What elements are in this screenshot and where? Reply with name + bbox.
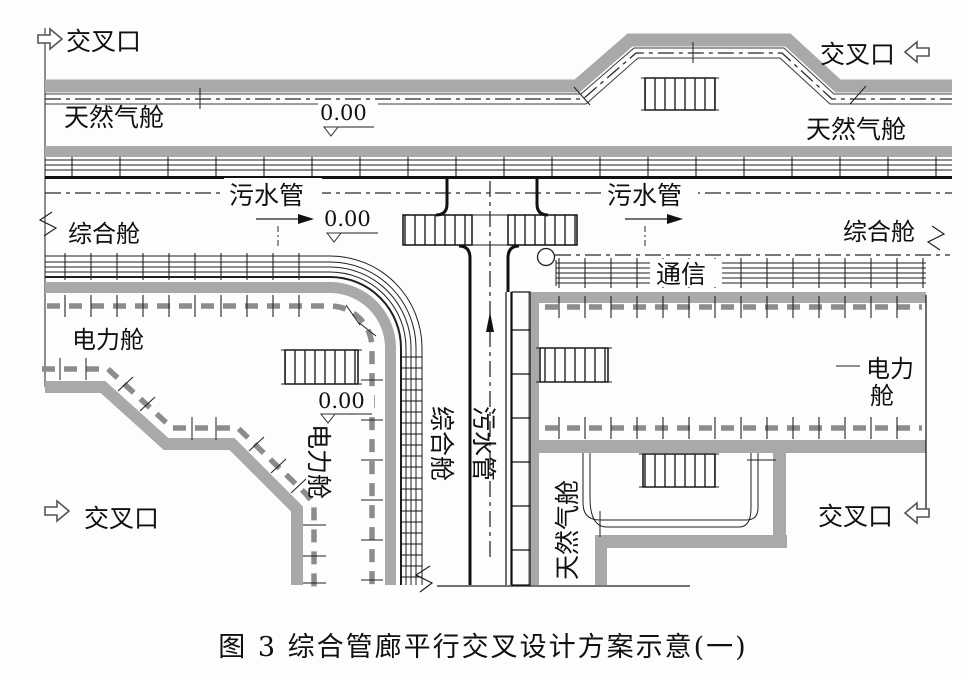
gas-corridor-top-wall [539, 440, 926, 453]
figure-caption: 图 3 综合管廊平行交叉设计方案示意(一) [218, 632, 747, 663]
rack-gray-wall [45, 146, 952, 157]
central-vertical-corridors [506, 292, 530, 585]
intersection-label-bottom-left: 交叉口 [84, 504, 159, 533]
power-label-vertical: 电力舱 [304, 424, 333, 499]
elevation-value: 0.00 [320, 101, 367, 125]
sewage-label-right: 污水管 [607, 181, 682, 210]
rack-tick-row [50, 253, 322, 280]
utility-label-right: 综合舱 [843, 218, 915, 246]
intersection-label-top-left: 交叉口 [66, 27, 141, 56]
utility-label-vertical: 综合舱 [427, 406, 456, 481]
intersection-label-bottom-right: 交叉口 [818, 502, 893, 531]
elevation-marker-mid: 0.00 [324, 207, 378, 242]
break-zigzag-icon [928, 226, 944, 250]
elevation-triangle-icon [327, 233, 341, 242]
manhole-circle-icon [538, 249, 555, 266]
ladder-icon [285, 350, 358, 384]
left-rack-corner [45, 253, 422, 590]
elevation-marker-top: 0.00 [318, 100, 378, 136]
gas-corridor-right-wall [773, 453, 786, 543]
rack-bottom-wall [45, 277, 401, 585]
gas-compartment-band [45, 40, 952, 110]
gas-corridor-left-wall [595, 535, 607, 585]
sewage-duct-right-wall [508, 246, 519, 292]
utility-tunnel-plan: 0.00 0.00 0.00 交叉口 交叉口 交叉口 交叉口 天然气舱 天然气舱… [0, 0, 967, 678]
right-side-structures [528, 249, 950, 586]
ladder-icon [540, 348, 608, 382]
ladder-rungs [401, 350, 422, 585]
gas-corridor-bottom-right [583, 453, 787, 585]
direction-arrow-icon [905, 42, 929, 62]
gas-label-vertical: 天然气舱 [553, 480, 582, 580]
elevation-triangle-icon [324, 127, 338, 136]
ladder-icon [403, 215, 472, 245]
cable-tick-row [55, 295, 313, 317]
intersection-label-top-right: 交叉口 [820, 40, 895, 69]
break-zigzag-icon [40, 212, 56, 236]
gas-label-right: 天然气舱 [806, 115, 906, 144]
flow-arrow-icon [298, 214, 314, 224]
gas-corridor-bottom-wall [595, 535, 787, 548]
utility-label-left: 综合舱 [68, 220, 140, 248]
elevation-value: 0.00 [318, 389, 365, 413]
gas-label-left: 天然气舱 [64, 103, 164, 132]
stepped-power-duct [42, 358, 326, 588]
figure-canvas: 0.00 0.00 0.00 交叉口 交叉口 交叉口 交叉口 天然气舱 天然气舱… [0, 0, 967, 678]
ladder-icon [643, 454, 715, 487]
communication-label: 通信 [656, 260, 706, 289]
gas-band-wall [45, 40, 952, 86]
junction-wall [436, 179, 447, 215]
power-label-right-line2: 舱 [870, 382, 894, 410]
sewage-label-left: 污水管 [229, 181, 304, 210]
junction-wall [537, 179, 548, 215]
elevation-value: 0.00 [324, 207, 371, 231]
flow-arrow-icon [486, 312, 494, 332]
ladder-icon [508, 215, 577, 245]
cable-tick-row [547, 296, 922, 318]
pipe-rack-band [45, 146, 952, 179]
elevation-triangle-icon [321, 414, 335, 423]
direction-arrow-icon [45, 501, 69, 521]
sewage-label-vertical: 污水管 [469, 406, 498, 481]
sewage-duct-left-wall [459, 246, 470, 585]
cable-tick-row [547, 417, 922, 439]
power-label-left: 电力舱 [72, 326, 144, 354]
power-gray-wall [45, 387, 297, 585]
ladder-icon [512, 292, 530, 585]
ladder-icon [645, 78, 715, 110]
flow-arrow-icon [667, 214, 683, 224]
direction-arrow-icon [38, 29, 62, 49]
communication-rack [556, 258, 926, 288]
power-label-right-line1: 电力 [866, 355, 914, 383]
